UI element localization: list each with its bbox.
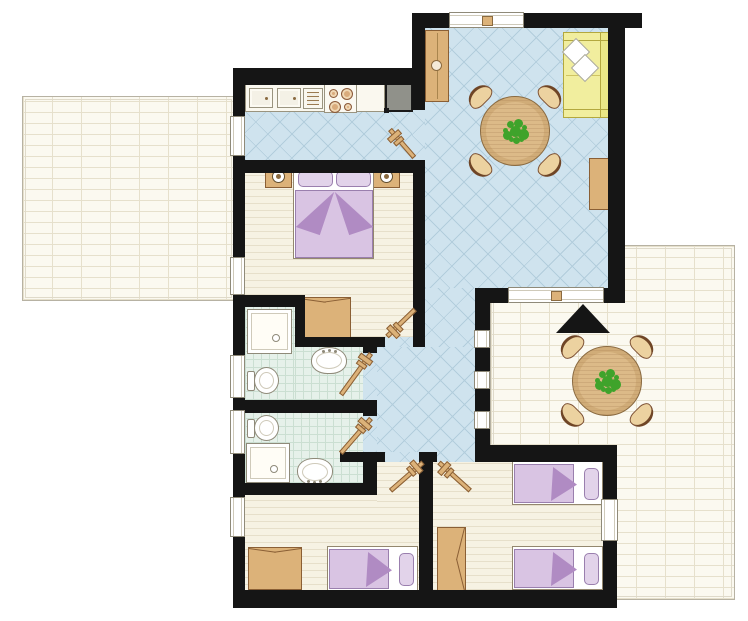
doorway-floor	[385, 452, 423, 462]
wardrobe	[298, 297, 351, 338]
wardrobe	[248, 547, 302, 590]
wall	[608, 25, 625, 303]
tall-cabinet	[425, 30, 449, 102]
wall	[419, 452, 433, 592]
hallway-floor	[377, 347, 475, 462]
burner-icon	[329, 101, 341, 113]
toilet	[247, 414, 280, 443]
drainer	[303, 88, 323, 109]
single-bed	[327, 546, 418, 591]
single-bed	[512, 461, 603, 505]
plant	[510, 126, 521, 137]
wall	[477, 445, 617, 462]
fridge	[385, 81, 413, 112]
pillow	[336, 171, 371, 187]
sideboard	[589, 158, 609, 210]
sofa-armrest	[564, 33, 608, 41]
dining-table-set	[463, 79, 567, 183]
wall	[233, 483, 375, 495]
wall	[233, 590, 617, 608]
window	[230, 497, 245, 537]
toilet	[247, 366, 280, 396]
wall	[233, 160, 425, 173]
shower	[247, 309, 292, 354]
outdoor-table-set	[555, 329, 659, 433]
single-bed	[512, 546, 603, 590]
wall	[233, 400, 375, 413]
stove	[324, 84, 357, 113]
window	[449, 12, 524, 28]
pillow	[584, 553, 599, 585]
kitchen-sink	[249, 88, 273, 108]
toilet-bowl	[254, 367, 279, 394]
terrace-left	[22, 96, 235, 301]
wall	[363, 400, 377, 416]
wall	[233, 68, 423, 85]
doorway-floor	[385, 337, 413, 347]
double-bed	[293, 166, 374, 259]
wall	[363, 337, 377, 353]
bathroom-sink	[297, 458, 333, 486]
sofa-back	[600, 33, 608, 117]
wardrobe	[437, 527, 466, 592]
window	[230, 410, 245, 454]
floor-plan	[0, 0, 748, 621]
cabinet-knob-icon	[431, 60, 442, 71]
burner-icon	[329, 89, 338, 98]
kitchen-sink	[277, 88, 301, 108]
window	[474, 330, 490, 348]
pillow	[298, 171, 333, 187]
window	[508, 287, 604, 303]
bathroom-sink	[311, 347, 347, 374]
window	[601, 499, 618, 541]
pillow	[584, 468, 599, 500]
window	[230, 116, 245, 156]
sofa-armrest	[564, 109, 608, 117]
burner-icon	[344, 103, 352, 111]
plant	[602, 376, 613, 387]
window	[474, 371, 490, 389]
wall	[340, 452, 385, 462]
shower	[246, 443, 290, 483]
hallway-floor	[425, 288, 475, 348]
toilet-bowl	[254, 415, 279, 441]
wall	[413, 160, 425, 347]
window	[230, 355, 245, 398]
pillow	[399, 553, 414, 586]
burner-icon	[341, 88, 353, 100]
window	[230, 257, 245, 295]
window	[474, 411, 490, 429]
